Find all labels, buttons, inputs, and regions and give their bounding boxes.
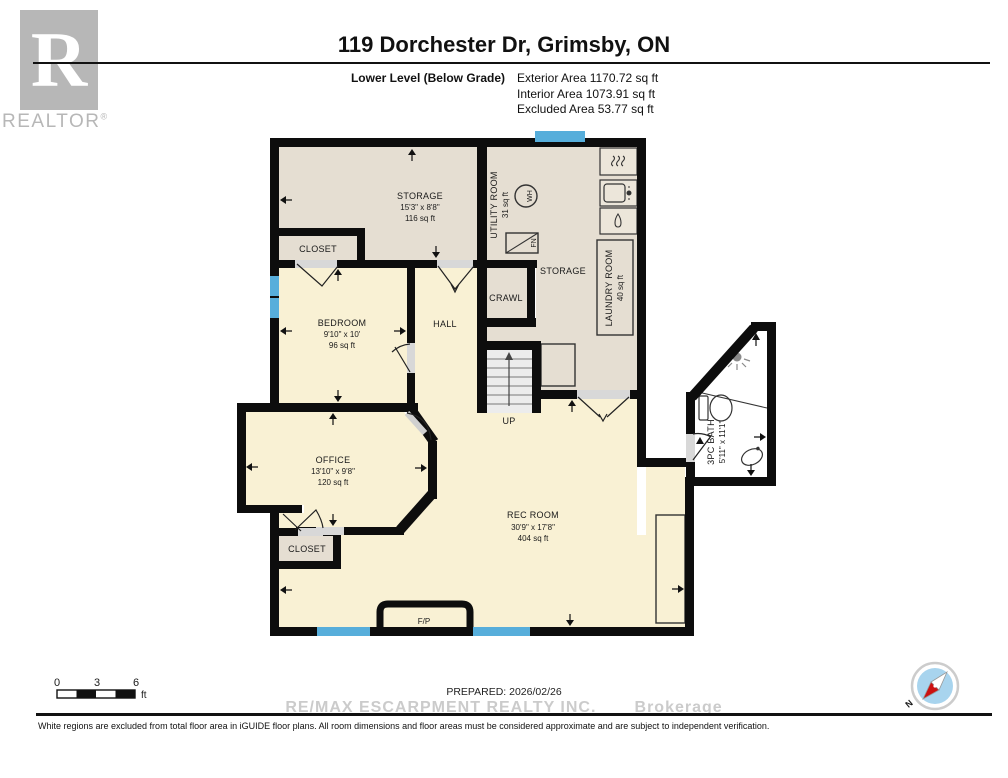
storage-link-floor bbox=[487, 327, 536, 341]
rec-room-label: REC ROOM bbox=[507, 510, 559, 520]
window-rec-2 bbox=[473, 627, 530, 636]
stairs-up-label: UP bbox=[502, 416, 515, 426]
laundry-label: LAUNDRY ROOM bbox=[604, 250, 614, 327]
bedroom-area: 96 sq ft bbox=[329, 341, 356, 350]
floor-plan-page: R REALTOR® 119 Dorchester Dr, Grimsby, O… bbox=[0, 0, 1008, 778]
bedroom-label: BEDROOM bbox=[318, 318, 367, 328]
disclaimer-text: White regions are excluded from total fl… bbox=[38, 721, 968, 731]
closet-top-label: CLOSET bbox=[299, 244, 337, 254]
storage-top-dims: 15'3" x 8'8" bbox=[400, 203, 440, 212]
storage-right-label: STORAGE bbox=[540, 266, 586, 276]
freezer bbox=[541, 344, 575, 386]
rec-room-area: 404 sq ft bbox=[518, 534, 549, 543]
floor-plan-drawing: STORAGE 15'3" x 8'8" 116 sq ft CLOSET UT… bbox=[0, 0, 1008, 778]
office-label: OFFICE bbox=[316, 455, 351, 465]
storage-top-label: STORAGE bbox=[397, 191, 443, 201]
bedroom-dims: 9'10" x 10' bbox=[324, 330, 361, 339]
utility-label: UTILITY ROOM bbox=[489, 171, 499, 238]
hall-floor bbox=[415, 262, 477, 413]
dryer bbox=[600, 148, 637, 175]
storage-top-area: 116 sq ft bbox=[405, 214, 436, 223]
laundry-sink bbox=[600, 180, 637, 206]
rec-room-dims: 30'9" x 17'8" bbox=[511, 523, 555, 532]
prepared-date: PREPARED: 2026/02/26 bbox=[0, 686, 1008, 698]
rec-builtin bbox=[656, 515, 685, 623]
fireplace-label: F/P bbox=[418, 617, 430, 626]
washer bbox=[600, 208, 637, 234]
bath-dims: 5'11" x 11'1" bbox=[718, 420, 727, 463]
office-area: 120 sq ft bbox=[318, 478, 349, 487]
window-bedroom-2 bbox=[270, 298, 279, 318]
hall-label: HALL bbox=[433, 319, 457, 329]
laundry-area: 40 sq ft bbox=[616, 274, 625, 301]
footer-divider bbox=[36, 713, 992, 716]
water-heater-label: WH bbox=[527, 190, 534, 202]
window-rec-1 bbox=[317, 627, 370, 636]
crawl-label: CRAWL bbox=[489, 293, 523, 303]
bath-label: 3PC BATH bbox=[706, 419, 716, 465]
laundry-room-outline bbox=[597, 240, 633, 335]
closet-bottom-label: CLOSET bbox=[288, 544, 326, 554]
furnace-label: FN bbox=[531, 238, 538, 247]
window-bedroom-1 bbox=[270, 276, 279, 296]
office-dims: 13'10" x 9'8" bbox=[311, 467, 355, 476]
faucet-icon bbox=[627, 191, 631, 195]
utility-area: 31 sq ft bbox=[501, 191, 510, 218]
window-top bbox=[535, 131, 585, 142]
